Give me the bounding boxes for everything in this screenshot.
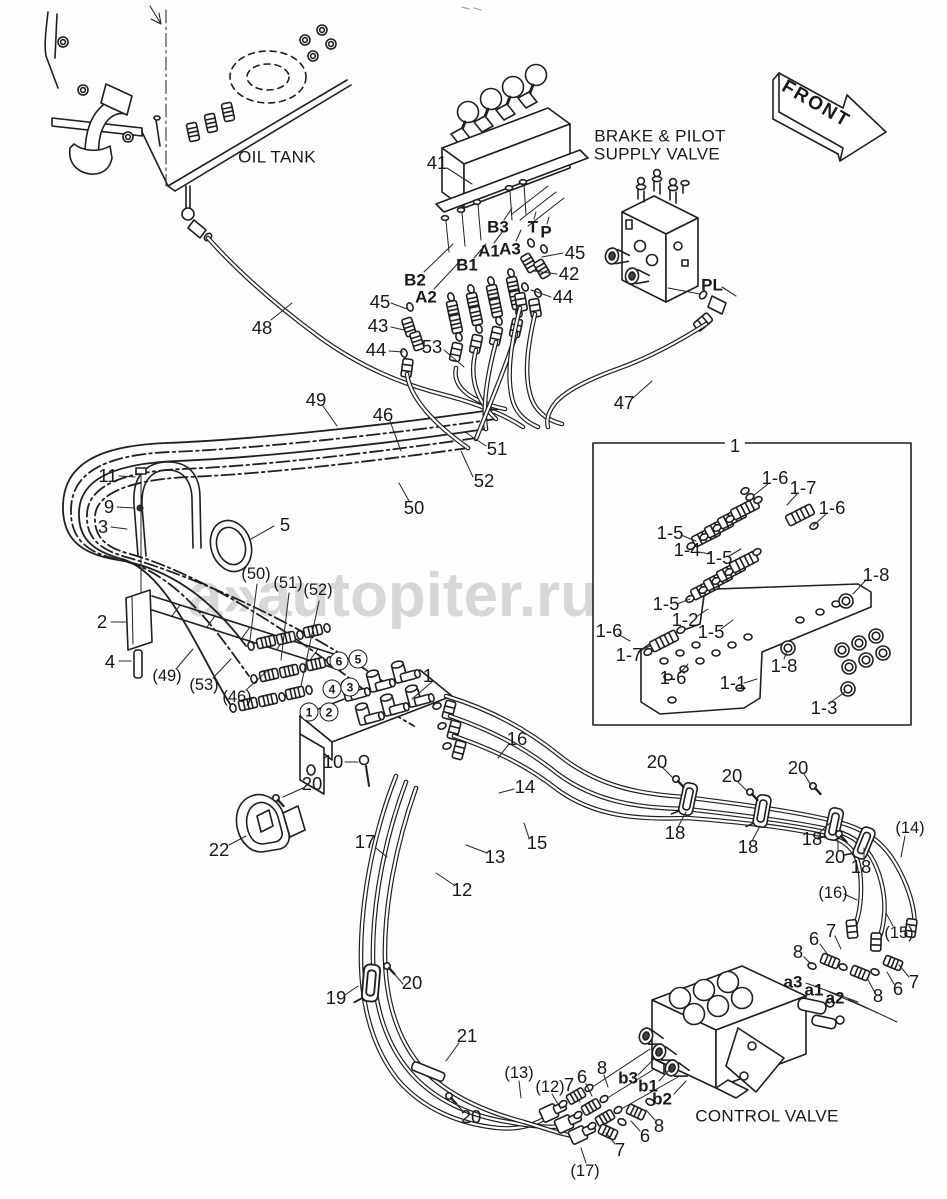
part-label-18: 18 <box>738 838 759 857</box>
part-label-53: 53 <box>422 338 443 357</box>
part-label-1-8: 1-8 <box>771 657 798 676</box>
part-label-2: 2 <box>320 703 339 722</box>
part-label-15: 15 <box>527 834 548 853</box>
part-label-b3: b3 <box>618 1070 638 1087</box>
part-label-18: 18 <box>802 830 823 849</box>
part-label-4: 4 <box>105 653 115 672</box>
part-label-3: 3 <box>341 678 360 697</box>
part-label-11: 11 <box>98 467 117 486</box>
part-label-46: (46) <box>222 689 251 706</box>
part-label-22: 22 <box>209 841 230 860</box>
part-label-44: 44 <box>553 288 574 307</box>
part-label-b2: b2 <box>652 1091 672 1108</box>
part-label-50: 50 <box>404 499 425 518</box>
caption-controlvalve: CONTROL VALVE <box>695 1108 838 1125</box>
part-label-16: (16) <box>818 885 847 902</box>
part-label-13: 13 <box>485 848 506 867</box>
part-label-3: 3 <box>98 518 108 537</box>
part-label-1-5: 1-5 <box>706 549 733 568</box>
part-label-1-8: 1-8 <box>863 566 890 585</box>
part-label-50: (50) <box>241 566 270 583</box>
part-label-51: (51) <box>273 575 302 592</box>
part-label-16: 16 <box>507 730 528 749</box>
part-label-52: 52 <box>474 472 495 491</box>
part-label-t: T <box>528 219 538 236</box>
part-label-17: (17) <box>570 1163 599 1180</box>
part-label-49: 49 <box>306 391 327 410</box>
part-label-10: 10 <box>323 753 344 772</box>
part-label-4: 4 <box>323 680 342 699</box>
part-label-1-2: 1-2 <box>672 611 699 630</box>
part-label-8: 8 <box>597 1059 607 1078</box>
part-label-12: 12 <box>452 881 473 900</box>
part-label-15: (15) <box>884 925 913 942</box>
part-label-14: 14 <box>515 778 536 797</box>
part-label-20: 20 <box>461 1108 482 1127</box>
part-label-1-1: 1-1 <box>720 674 747 693</box>
part-label-b1: B1 <box>456 257 478 274</box>
part-label-1-5: 1-5 <box>698 623 725 642</box>
part-label-19: 19 <box>326 989 347 1008</box>
part-label-41: 41 <box>427 154 448 173</box>
part-label-5: 5 <box>349 650 368 669</box>
part-label-42: 42 <box>559 265 580 284</box>
part-label-a1: a1 <box>805 982 824 999</box>
part-label-7: 7 <box>826 922 836 941</box>
part-label-7: 7 <box>615 1141 625 1160</box>
part-label-1: 1 <box>300 703 319 722</box>
part-label-p: P <box>540 224 551 241</box>
part-label-18: 18 <box>665 824 686 843</box>
part-label-b3: B3 <box>487 219 509 236</box>
part-label-53: (53) <box>189 677 218 694</box>
part-label-52: (52) <box>303 582 332 599</box>
part-label-6: 6 <box>330 652 349 671</box>
part-label-1: 1 <box>423 667 433 686</box>
part-label-20: 20 <box>722 767 743 786</box>
part-label-a2: a2 <box>826 990 845 1007</box>
part-label-12: (12) <box>535 1079 564 1096</box>
part-label-9: 9 <box>104 498 114 517</box>
part-label-1-7: 1-7 <box>616 646 643 665</box>
part-label-1-4: 1-4 <box>674 541 701 560</box>
caption-brakepilot: BRAKE & PILOT <box>594 128 725 145</box>
part-label-8: 8 <box>873 987 883 1006</box>
part-label-a1: A1 <box>478 243 500 260</box>
part-label-17: 17 <box>355 833 376 852</box>
part-label-pl: PL <box>701 277 723 294</box>
part-label-1-7: 1-7 <box>790 479 817 498</box>
part-label-6: 6 <box>577 1068 587 1087</box>
part-label-a2: A2 <box>415 289 437 306</box>
part-label-20: 20 <box>402 974 423 993</box>
part-label-21: 21 <box>457 1027 478 1046</box>
part-label-b2: B2 <box>404 272 426 289</box>
part-label-13: (13) <box>504 1065 533 1082</box>
part-label-49: (49) <box>152 668 181 685</box>
part-label-51: 51 <box>487 440 508 459</box>
part-label-8: 8 <box>793 943 803 962</box>
part-label-1-6: 1-6 <box>762 469 789 488</box>
part-label-46: 46 <box>373 406 394 425</box>
part-label-2: 2 <box>97 613 107 632</box>
part-label-44: 44 <box>366 341 387 360</box>
part-label-1-6: 1-6 <box>819 499 846 518</box>
part-label-7: 7 <box>564 1076 574 1095</box>
part-label-20: 20 <box>647 753 668 772</box>
part-label-20: 20 <box>302 775 323 794</box>
part-label-47: 47 <box>614 394 635 413</box>
part-label-20: 20 <box>825 848 846 867</box>
part-label-6: 6 <box>809 930 819 949</box>
part-label-7: 7 <box>909 973 919 992</box>
caption-supplyvalve: SUPPLY VALVE <box>594 146 720 163</box>
part-label-1-6: 1-6 <box>660 669 687 688</box>
part-label-18: 18 <box>851 858 872 877</box>
part-label-8: 8 <box>654 1117 664 1136</box>
part-label-6: 6 <box>640 1127 650 1146</box>
part-label-a3: A3 <box>499 241 521 258</box>
part-label-45: 45 <box>370 293 391 312</box>
part-label-20: 20 <box>788 759 809 778</box>
part-label-1: 1 <box>725 437 745 456</box>
part-label-43: 43 <box>368 317 389 336</box>
label-layer: OIL TANKBRAKE & PILOTSUPPLY VALVECONTROL… <box>0 0 947 1199</box>
part-label-a3: a3 <box>784 974 803 991</box>
part-label-1-3: 1-3 <box>811 699 838 718</box>
part-label-1-6: 1-6 <box>596 622 623 641</box>
caption-oiltank: OIL TANK <box>238 149 316 166</box>
part-label-14: (14) <box>895 820 924 837</box>
caption-front: FRONT <box>779 77 854 131</box>
parts-diagram-canvas: a»autopiter.ru <box>0 0 947 1199</box>
part-label-45: 45 <box>565 244 586 263</box>
part-label-6: 6 <box>893 980 903 999</box>
part-label-5: 5 <box>280 516 290 535</box>
part-label-48: 48 <box>252 319 273 338</box>
